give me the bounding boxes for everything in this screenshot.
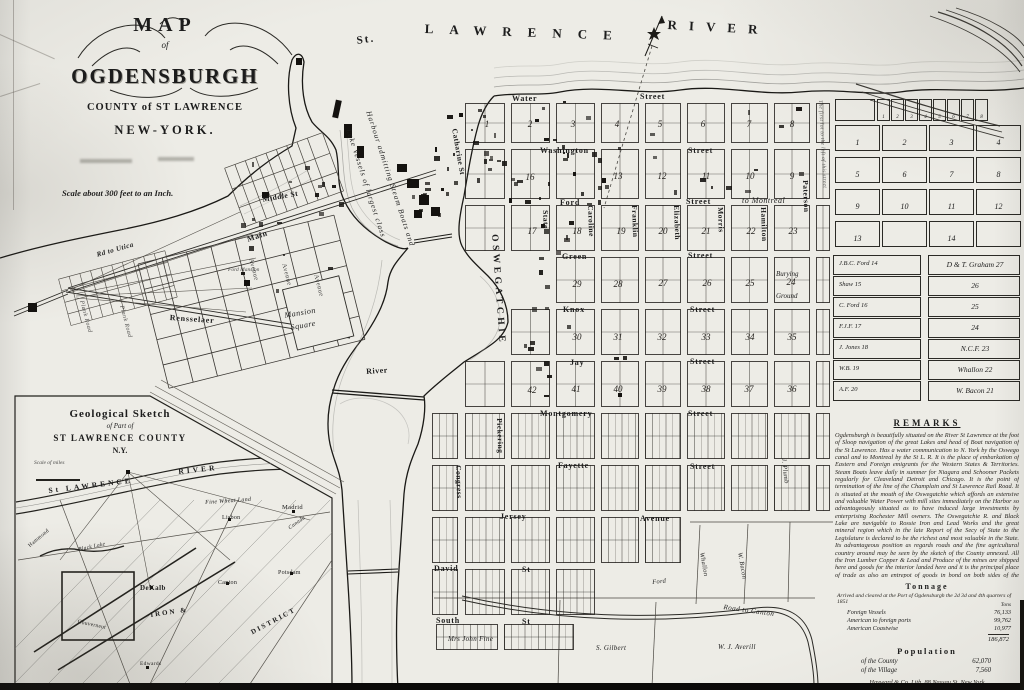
illegible-imprint <box>158 157 194 161</box>
grid-block-number: 7 <box>950 170 954 179</box>
owner-row: N.C.F. 23 <box>928 339 1020 359</box>
owner-row: J.B.C. Ford 14 <box>833 255 921 275</box>
grid-block: 10 <box>882 189 927 215</box>
tonnage-value: 99,762 <box>994 617 1011 625</box>
owner-row: J. Jones 18 <box>833 339 921 359</box>
wharf-buildings <box>296 58 440 218</box>
grid-block-number: 4 <box>997 138 1001 147</box>
grid-lot: 4 <box>919 99 932 121</box>
tonnage-label: Foreign Vessels <box>847 609 886 617</box>
grid-block-number: 3 <box>950 138 954 147</box>
middle-grid <box>225 133 344 227</box>
grid-block-number: 13 <box>854 234 862 243</box>
grid-block: 8 <box>976 157 1021 183</box>
grid-block-number: 6 <box>903 170 907 179</box>
tonnage-rows: Foreign Vessels76,133American to foreign… <box>847 609 1011 633</box>
tonnage-title: Tonnage <box>833 582 1021 591</box>
grid-block: 3 <box>929 125 974 151</box>
owner-row: Whallon 22 <box>928 360 1020 380</box>
grid-block: 7 <box>929 157 974 183</box>
grid-lot: 2 <box>891 99 904 121</box>
southeast-roads <box>434 522 833 686</box>
illegible-imprint <box>80 159 132 163</box>
title-state: NEW-YORK. <box>40 123 290 138</box>
title-of-word: of <box>40 40 290 50</box>
tonnage-value: 10,977 <box>994 625 1011 633</box>
tonnage-row: American to foreign ports99,762 <box>847 617 1011 625</box>
scan-edge-right <box>1020 600 1024 690</box>
grid-lot-number: 1 <box>882 115 885 120</box>
grid-block-number: 10 <box>901 202 909 211</box>
population-row: of the Village7,560 <box>861 666 991 675</box>
paper-crease <box>13 0 14 210</box>
grid-block: 13 <box>835 221 880 247</box>
grid-block: 14 <box>929 221 974 247</box>
owner-row: A.F. 20 <box>833 381 921 401</box>
scale-note: Scale about 300 feet to an Inch. <box>62 188 173 198</box>
west-grid <box>138 215 365 388</box>
population-label: of the Village <box>861 666 897 675</box>
tonnage-row: American Coastwise10,977 <box>847 625 1011 633</box>
grid-block-number: 1 <box>856 138 860 147</box>
grid-lot-number: 3 <box>910 115 913 120</box>
tonnage-value: 76,133 <box>994 609 1011 617</box>
inset-title-line4: N.Y. <box>30 446 210 455</box>
grid-block <box>976 221 1021 247</box>
title-city: OGDENSBURGH <box>40 64 290 89</box>
remarks-text: Ogdensburgh is beautifully situated on t… <box>835 432 1019 578</box>
grid-block: 9 <box>835 189 880 215</box>
grid-block-number: 8 <box>997 170 1001 179</box>
inset-title-line3: ST LAWRENCE COUNTY <box>30 433 210 443</box>
grid-lot: 8 <box>975 99 988 121</box>
population-value: 62,070 <box>972 657 991 666</box>
tonnage-intro: Arrived and cleared at the Port of Ogden… <box>837 593 1017 605</box>
population-title: Population <box>833 646 1021 656</box>
owner-row: 25 <box>928 297 1020 317</box>
tonnage-row: Foreign Vessels76,133 <box>847 609 1011 617</box>
owner-row: W.B. 19 <box>833 360 921 380</box>
owner-row: Shaw 15 <box>833 276 921 296</box>
right-panel: 123456781234567891011121314 J.B.C. Ford … <box>833 85 1023 685</box>
owner-row: D & T. Graham 27 <box>928 255 1020 275</box>
grid-lot-number: 8 <box>980 115 983 120</box>
owner-row: 24 <box>928 318 1020 338</box>
waterfront-lots <box>59 251 178 326</box>
grid-lot: 3 <box>905 99 918 121</box>
inset-title-line1: Geological Sketch <box>30 408 210 420</box>
grid-block: 5 <box>835 157 880 183</box>
owner-row: C. Ford 16 <box>833 297 921 317</box>
grid-lot-number: 2 <box>896 115 899 120</box>
population-value: 7,560 <box>976 666 991 675</box>
grid-block <box>882 221 927 247</box>
tonnage-label: American to foreign ports <box>847 617 911 625</box>
inset-scale-label: Scale of miles <box>30 460 210 466</box>
map-sheet: 1234567816131211109171819202122232928272… <box>0 0 1024 690</box>
grid-block: 4 <box>976 125 1021 151</box>
owner-row: 26 <box>928 276 1020 296</box>
tonnage-total: 186,872 <box>988 634 1009 643</box>
remarks-title: REMARKS <box>833 418 1021 428</box>
grid-block-number: 12 <box>995 202 1003 211</box>
title-cartouche: MAP of OGDENSBURGH COUNTY of ST LAWRENCE… <box>40 14 290 138</box>
compass-rose <box>604 16 665 208</box>
grid-lot-number: 4 <box>924 115 927 120</box>
grid-lot: 6 <box>947 99 960 121</box>
grid-block-number: 9 <box>856 202 860 211</box>
addition-grid: 123456781234567891011121314 <box>833 91 1021 249</box>
population-row: of the County62,070 <box>861 657 991 666</box>
grid-lot: 5 <box>933 99 946 121</box>
grid-block: 11 <box>929 189 974 215</box>
grid-block-number: 11 <box>948 202 955 211</box>
grid-lot: 1 <box>877 99 890 121</box>
title-map-word: MAP <box>40 14 290 37</box>
owner-row: W. Bacon 21 <box>928 381 1020 401</box>
inset-title-line2: of Part of <box>30 422 210 430</box>
grid-block: 2 <box>882 125 927 151</box>
population-label: of the County <box>861 657 898 666</box>
tonnage-label: American Coastwise <box>847 625 898 633</box>
grid-block-number: 2 <box>903 138 907 147</box>
grid-lot-number: 5 <box>938 115 941 120</box>
grid-block-number: 5 <box>856 170 860 179</box>
title-county: COUNTY of ST LAWRENCE <box>40 102 290 113</box>
grid-block: 12 <box>976 189 1021 215</box>
scan-edge-bottom <box>0 683 1024 690</box>
grid-block-number: 14 <box>948 234 956 243</box>
grid-block: 1 <box>835 125 880 151</box>
tonnage-column-header: Tons <box>1001 602 1011 608</box>
grid-lot-number: 7 <box>966 115 969 120</box>
grid-lot: 7 <box>961 99 974 121</box>
grid-block: 6 <box>882 157 927 183</box>
inset-title: Geological Sketch of Part of ST LAWRENCE… <box>30 408 210 466</box>
population-rows: of the County62,070of the Village7,560 <box>861 657 991 675</box>
grid-lot-number: 6 <box>952 115 955 120</box>
owner-row: F.J.F. 17 <box>833 318 921 338</box>
bridges <box>332 234 452 574</box>
grid-lot <box>835 99 875 121</box>
